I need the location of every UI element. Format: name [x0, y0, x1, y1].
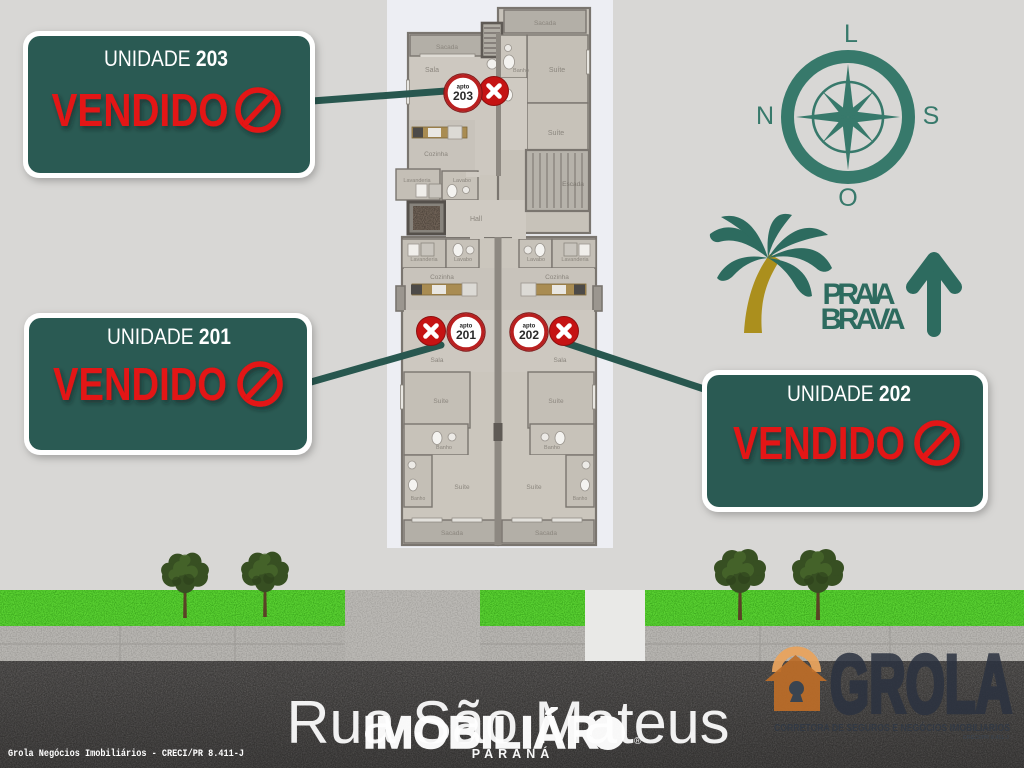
svg-text:PARANÁ: PARANÁ [472, 746, 555, 761]
svg-text:Suíte: Suíte [433, 398, 449, 405]
svg-text:Sacada: Sacada [535, 530, 557, 537]
svg-text:UNIDADE 201: UNIDADE 201 [107, 324, 231, 349]
svg-text:GROLA: GROLA [830, 639, 1012, 730]
svg-text:Lavabo: Lavabo [453, 178, 471, 184]
svg-text:Sala: Sala [425, 67, 439, 74]
svg-text:Lavanderia: Lavanderia [561, 257, 589, 263]
svg-text:Banho: Banho [573, 496, 588, 502]
svg-text:®: ® [634, 736, 642, 747]
svg-text:202: 202 [519, 328, 539, 342]
svg-text:L: L [844, 20, 858, 48]
svg-text:Cozinha: Cozinha [424, 151, 448, 158]
svg-text:CORRETORA DE SEGUROS E NEGÓCIO: CORRETORA DE SEGUROS E NEGÓCIOS IMOBILIA… [774, 721, 1010, 734]
svg-text:Banho: Banho [436, 445, 452, 451]
svg-text:CRECI/PR 8.411-J: CRECI/PR 8.411-J [963, 735, 1009, 741]
svg-text:Cozinha: Cozinha [545, 274, 569, 281]
svg-text:Suíte: Suíte [549, 67, 565, 74]
svg-text:Grola Negócios Imobiliários -: Grola Negócios Imobiliários - CRECI/PR 8… [8, 748, 244, 760]
svg-text:Sacada: Sacada [436, 44, 458, 51]
svg-text:Suíte: Suíte [548, 130, 564, 137]
svg-text:Suíte: Suíte [454, 484, 470, 491]
svg-text:Lavabo: Lavabo [454, 257, 472, 263]
svg-text:Suíte: Suíte [526, 484, 542, 491]
svg-text:VENDIDO: VENDIDO [53, 358, 227, 410]
svg-text:Lavanderia: Lavanderia [410, 257, 438, 263]
svg-text:Lavabo: Lavabo [527, 257, 545, 263]
svg-text:Sacada: Sacada [441, 530, 463, 537]
svg-text:Lavanderia: Lavanderia [403, 178, 431, 184]
svg-text:201: 201 [456, 328, 476, 342]
svg-text:Sacada: Sacada [534, 20, 556, 27]
svg-text:VENDIDO: VENDIDO [52, 84, 229, 136]
svg-text:Sala: Sala [430, 357, 443, 364]
svg-text:Escada: Escada [562, 181, 584, 188]
svg-text:BRAVA: BRAVA [821, 303, 906, 336]
svg-text:UNIDADE 203: UNIDADE 203 [104, 46, 228, 71]
svg-text:S: S [923, 102, 940, 130]
svg-text:N: N [756, 102, 774, 130]
svg-text:Banho: Banho [544, 445, 560, 451]
svg-text:Cozinha: Cozinha [430, 274, 454, 281]
svg-text:Hall: Hall [470, 216, 483, 223]
svg-text:VENDIDO: VENDIDO [733, 417, 905, 469]
svg-text:Banho: Banho [411, 496, 426, 502]
svg-text:Sala: Sala [553, 357, 566, 364]
svg-text:Banho: Banho [513, 68, 529, 74]
svg-text:203: 203 [453, 89, 473, 103]
svg-text:O: O [838, 184, 857, 212]
svg-text:Suíte: Suíte [548, 398, 564, 405]
svg-text:UNIDADE 202: UNIDADE 202 [787, 381, 911, 406]
